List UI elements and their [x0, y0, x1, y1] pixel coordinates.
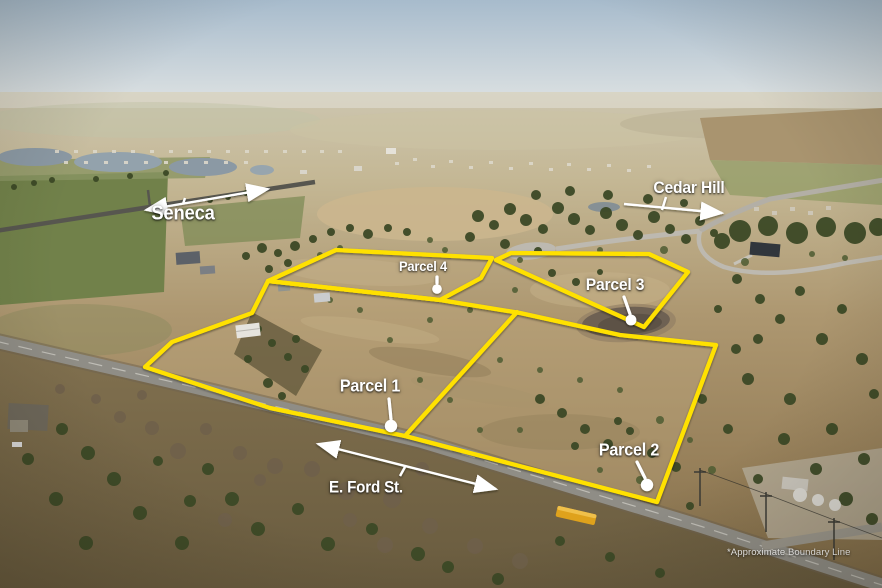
parcel-3-label: Parcel 3 [586, 275, 645, 295]
road-label-cedar-hill: Cedar Hill [653, 178, 724, 198]
parcel-2-label: Parcel 2 [599, 440, 659, 461]
road-label-e-ford-st: E. Ford St. [329, 479, 403, 498]
sky [0, 0, 882, 102]
boundary-disclaimer: *Approximate Boundary Line [727, 547, 851, 558]
parcel-4-label: Parcel 4 [399, 258, 447, 274]
road-label-seneca: Seneca [151, 203, 214, 226]
aerial-photo [0, 0, 882, 588]
parcel-1-label: Parcel 1 [340, 376, 400, 397]
aerial-parcel-map: Seneca Cedar Hill E. Ford St. Parcel 1 P… [0, 0, 882, 588]
